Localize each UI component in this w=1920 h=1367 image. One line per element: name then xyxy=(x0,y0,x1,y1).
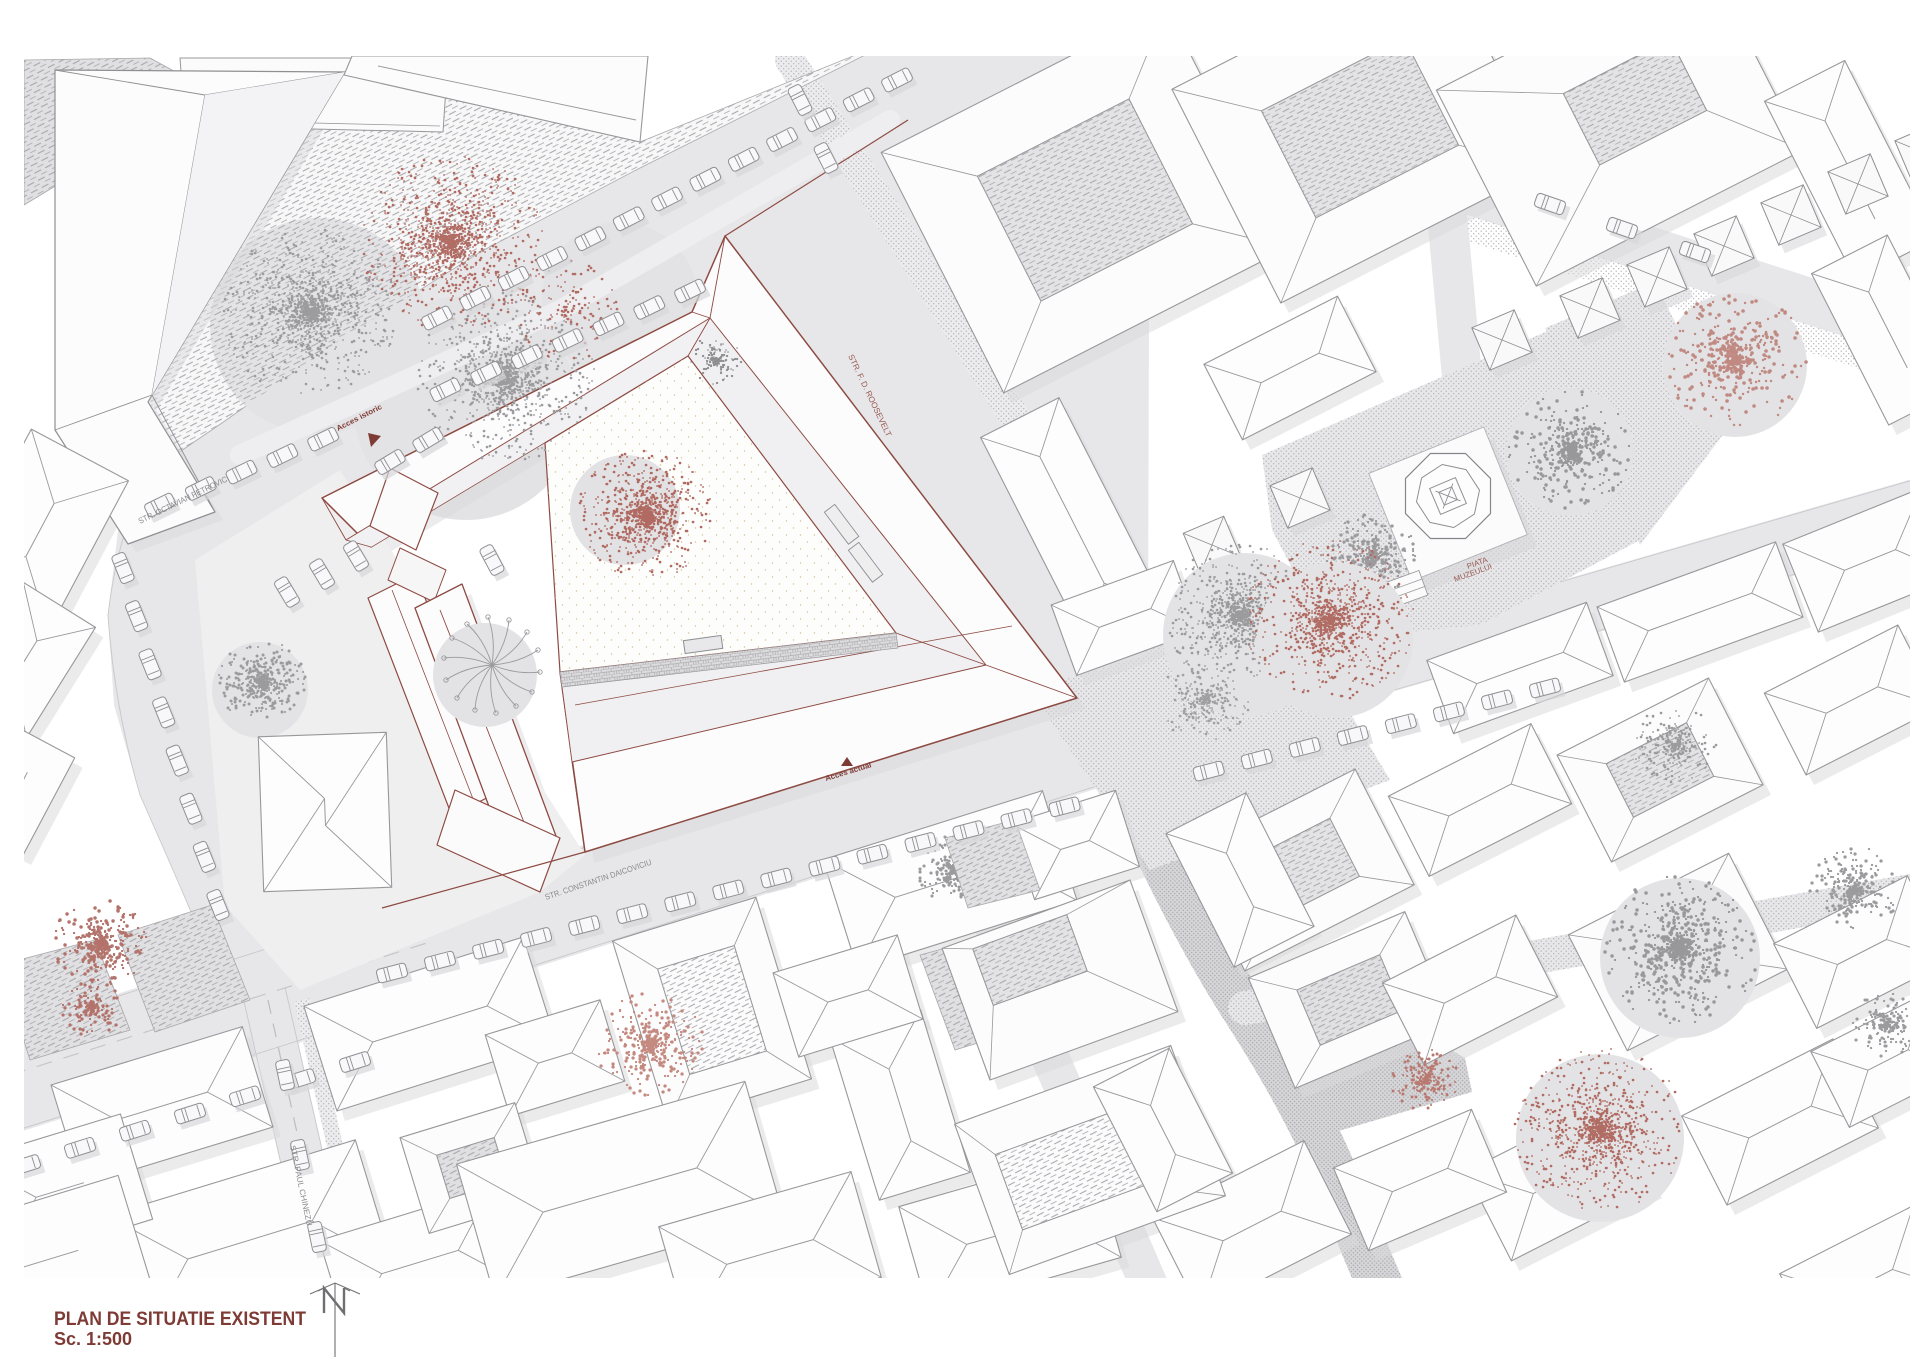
svg-text:PLAN DE SITUATIE EXISTENT: PLAN DE SITUATIE EXISTENT xyxy=(54,1309,306,1330)
svg-text:Sc. 1:500: Sc. 1:500 xyxy=(54,1329,132,1349)
